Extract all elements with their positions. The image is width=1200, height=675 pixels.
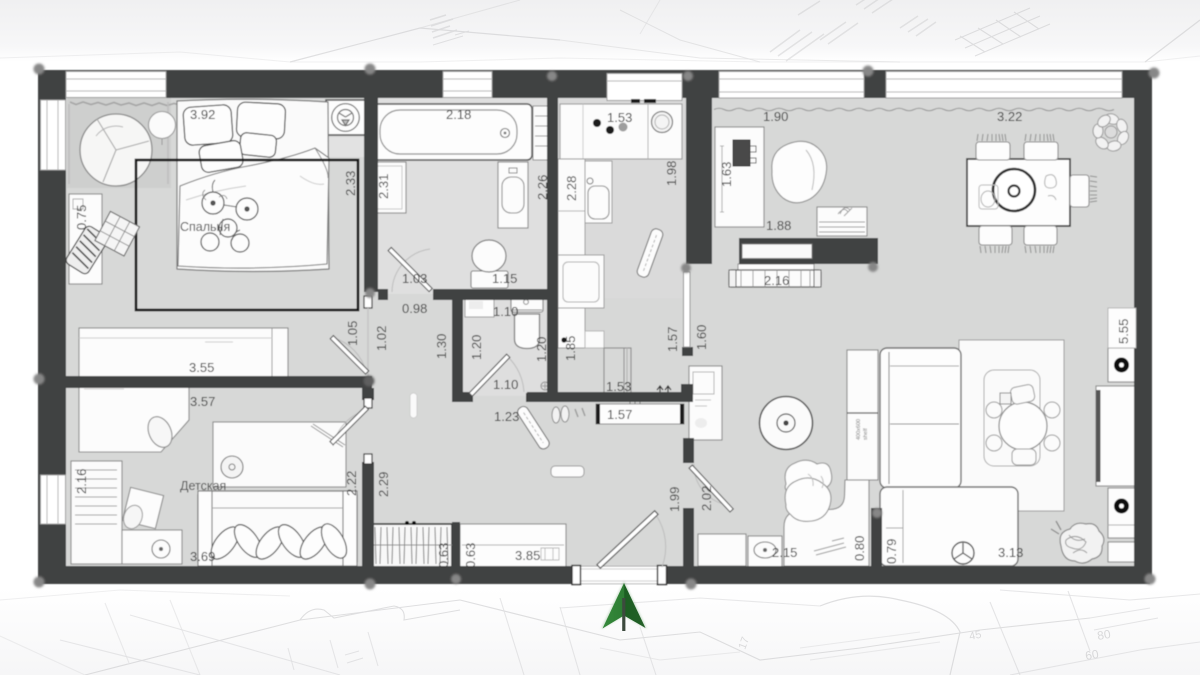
svg-text:0.98: 0.98 xyxy=(402,301,427,316)
svg-text:Спальня: Спальня xyxy=(180,220,230,234)
svg-text:2.26: 2.26 xyxy=(535,175,550,200)
svg-text:1.57: 1.57 xyxy=(607,407,632,422)
svg-text:60: 60 xyxy=(1084,647,1100,663)
svg-text:5.55: 5.55 xyxy=(1116,319,1131,344)
svg-text:1.63: 1.63 xyxy=(719,162,734,187)
svg-text:1.85: 1.85 xyxy=(563,336,578,361)
svg-text:1.57: 1.57 xyxy=(665,327,680,352)
svg-text:3.55: 3.55 xyxy=(189,360,214,375)
svg-text:shelf: shelf xyxy=(863,428,869,440)
svg-text:80: 80 xyxy=(1096,627,1112,643)
svg-text:0.80: 0.80 xyxy=(852,536,867,561)
svg-text:1.10: 1.10 xyxy=(493,377,518,392)
svg-text:0.79: 0.79 xyxy=(884,539,899,564)
svg-text:3.13: 3.13 xyxy=(998,545,1023,560)
svg-text:1.30: 1.30 xyxy=(434,334,449,359)
svg-text:0.63: 0.63 xyxy=(436,543,451,568)
svg-text:2.31: 2.31 xyxy=(376,174,391,199)
svg-text:2.29: 2.29 xyxy=(376,472,391,497)
svg-text:3.57: 3.57 xyxy=(190,394,215,409)
svg-text:45: 45 xyxy=(968,629,982,643)
svg-text:1.98: 1.98 xyxy=(664,161,679,186)
svg-text:400x600: 400x600 xyxy=(856,419,862,440)
svg-text:2.22: 2.22 xyxy=(344,471,359,496)
svg-text:0.63: 0.63 xyxy=(463,543,478,568)
svg-text:3.69: 3.69 xyxy=(190,549,215,564)
svg-text:1.03: 1.03 xyxy=(402,271,427,286)
svg-text:1.53: 1.53 xyxy=(607,110,632,125)
svg-text:1.53: 1.53 xyxy=(606,379,631,394)
svg-text:3.92: 3.92 xyxy=(190,107,215,122)
svg-text:2.16: 2.16 xyxy=(764,273,789,288)
svg-text:1.20: 1.20 xyxy=(469,335,484,360)
svg-text:3.22: 3.22 xyxy=(997,109,1022,124)
svg-text:2.15: 2.15 xyxy=(772,545,797,560)
svg-text:1.05: 1.05 xyxy=(345,321,360,346)
svg-text:1.90: 1.90 xyxy=(763,109,788,124)
svg-text:2.16: 2.16 xyxy=(74,469,89,494)
svg-text:1.15: 1.15 xyxy=(492,271,517,286)
svg-text:1.99: 1.99 xyxy=(667,487,682,512)
svg-text:3.85: 3.85 xyxy=(515,548,540,563)
svg-text:1.88: 1.88 xyxy=(766,218,791,233)
svg-text:1.20: 1.20 xyxy=(534,337,549,362)
svg-text:1.23: 1.23 xyxy=(494,409,519,424)
svg-text:2.18: 2.18 xyxy=(446,107,471,122)
svg-text:Детская: Детская xyxy=(180,479,226,493)
svg-text:1.02: 1.02 xyxy=(374,326,389,351)
svg-text:2.28: 2.28 xyxy=(564,176,579,201)
svg-text:1.10: 1.10 xyxy=(493,304,518,319)
svg-text:2.02: 2.02 xyxy=(699,486,714,511)
svg-text:1.60: 1.60 xyxy=(694,325,709,350)
svg-text:2.33: 2.33 xyxy=(343,171,358,196)
svg-text:0.75: 0.75 xyxy=(74,205,89,230)
